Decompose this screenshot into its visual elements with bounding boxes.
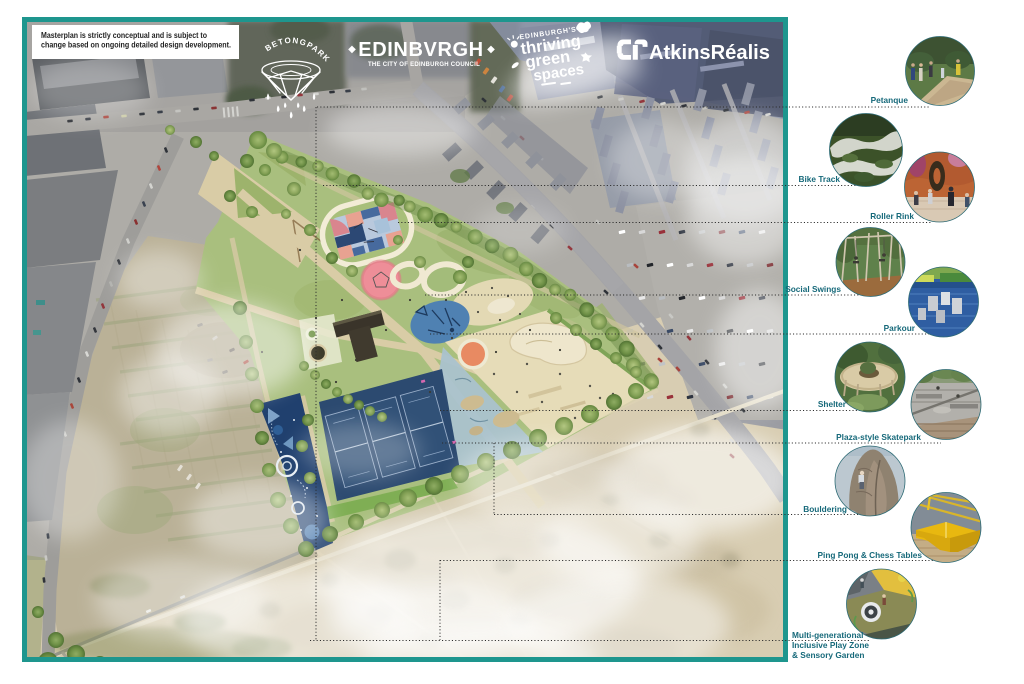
svg-text:Petanque: Petanque — [871, 95, 909, 105]
svg-text:Plaza-style Skatepark: Plaza-style Skatepark — [836, 432, 921, 442]
svg-text:◆: ◆ — [348, 44, 356, 55]
svg-text:& Sensory Garden: & Sensory Garden — [792, 650, 864, 660]
svg-text:change based on ongoing detail: change based on ongoing detailed design … — [41, 40, 231, 50]
svg-text:THE CITY OF EDINBURGH COUNCIL: THE CITY OF EDINBURGH COUNCIL — [368, 61, 480, 68]
svg-text:Bike Track: Bike Track — [798, 174, 840, 184]
svg-text:Roller Rink: Roller Rink — [870, 211, 914, 221]
svg-text:Ping Pong & Chess Tables: Ping Pong & Chess Tables — [818, 550, 923, 560]
svg-text:Bouldering: Bouldering — [803, 504, 847, 514]
svg-text:◆: ◆ — [487, 44, 495, 55]
svg-text:Inclusive Play Zone: Inclusive Play Zone — [792, 640, 869, 650]
svg-text:Shelter: Shelter — [818, 399, 847, 409]
svg-text:Parkour: Parkour — [884, 323, 916, 333]
svg-text:AtkinsRéalis: AtkinsRéalis — [649, 41, 770, 64]
svg-text:Masterplan is strictly concept: Masterplan is strictly conceptual and is… — [41, 30, 207, 40]
svg-text:EDINBVRGH: EDINBVRGH — [358, 39, 483, 61]
svg-text:Social Swings: Social Swings — [785, 284, 841, 294]
svg-text:Multi-generational: Multi-generational — [792, 630, 863, 640]
